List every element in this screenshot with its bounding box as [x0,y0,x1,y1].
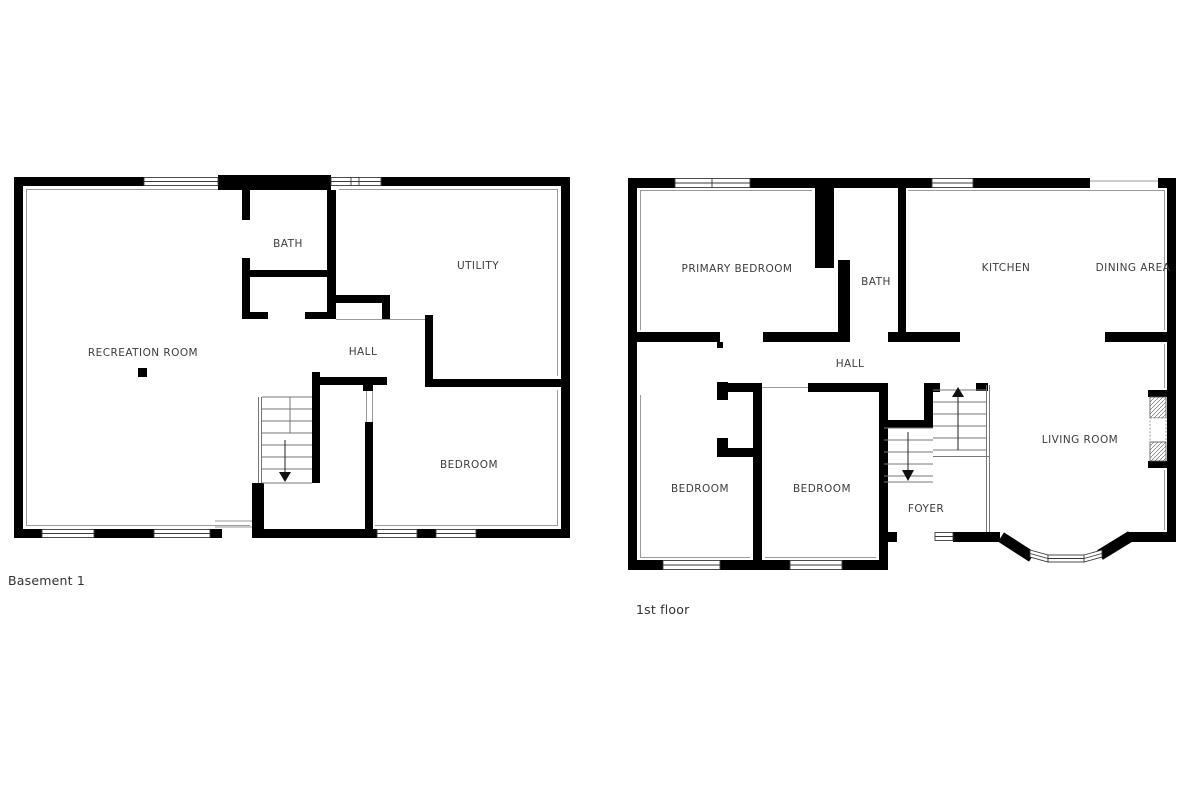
room-label-dining-area: DINING AREA [1096,262,1171,274]
chimney [815,188,834,268]
fireplace [1148,390,1167,468]
basement-stairs [259,397,313,483]
window [663,561,720,570]
basement-plan: RECREATION ROOM BATH UTILITY HALL BEDROO… [8,175,570,588]
support-post [138,368,147,377]
room-label-living-room: LIVING ROOM [1042,434,1118,446]
room-label-kitchen: KITCHEN [982,262,1031,274]
room-label-utility: UTILITY [457,260,499,272]
window [935,533,953,541]
first-floor-plan: PRIMARY BEDROOM BATH KITCHEN DINING AREA… [628,178,1176,617]
room-label-bedroom-middle: BEDROOM [793,483,851,495]
first-floor-caption: 1st floor [636,602,690,617]
window [331,178,381,186]
room-label-bedroom: BEDROOM [440,459,498,471]
window [377,530,417,538]
basement-caption: Basement 1 [8,573,85,588]
room-label-bath: BATH [273,238,303,250]
window [144,178,218,186]
room-label-foyer: FOYER [908,503,944,515]
window [154,530,210,538]
room-label-bedroom-left: BEDROOM [671,483,729,495]
room-label-hall: HALL [836,358,865,370]
stairs-down [884,428,933,482]
stairs-down-arrow-icon [279,472,291,482]
stairs-up-arrow-icon [952,387,964,397]
window [675,179,750,188]
window [42,530,94,538]
floor-plans-drawing: RECREATION ROOM BATH UTILITY HALL BEDROO… [0,0,1200,805]
room-label-primary-bedroom: PRIMARY BEDROOM [682,263,793,275]
bay-window [1030,550,1102,562]
room-label-hall: HALL [349,346,378,358]
window [436,530,476,538]
room-label-bath: BATH [861,276,891,288]
window [932,179,973,188]
window [790,561,842,570]
floor-plan-sheet: RECREATION ROOM BATH UTILITY HALL BEDROO… [0,0,1200,805]
room-label-recreation: RECREATION ROOM [88,347,198,359]
first-floor-walls [628,178,1176,570]
